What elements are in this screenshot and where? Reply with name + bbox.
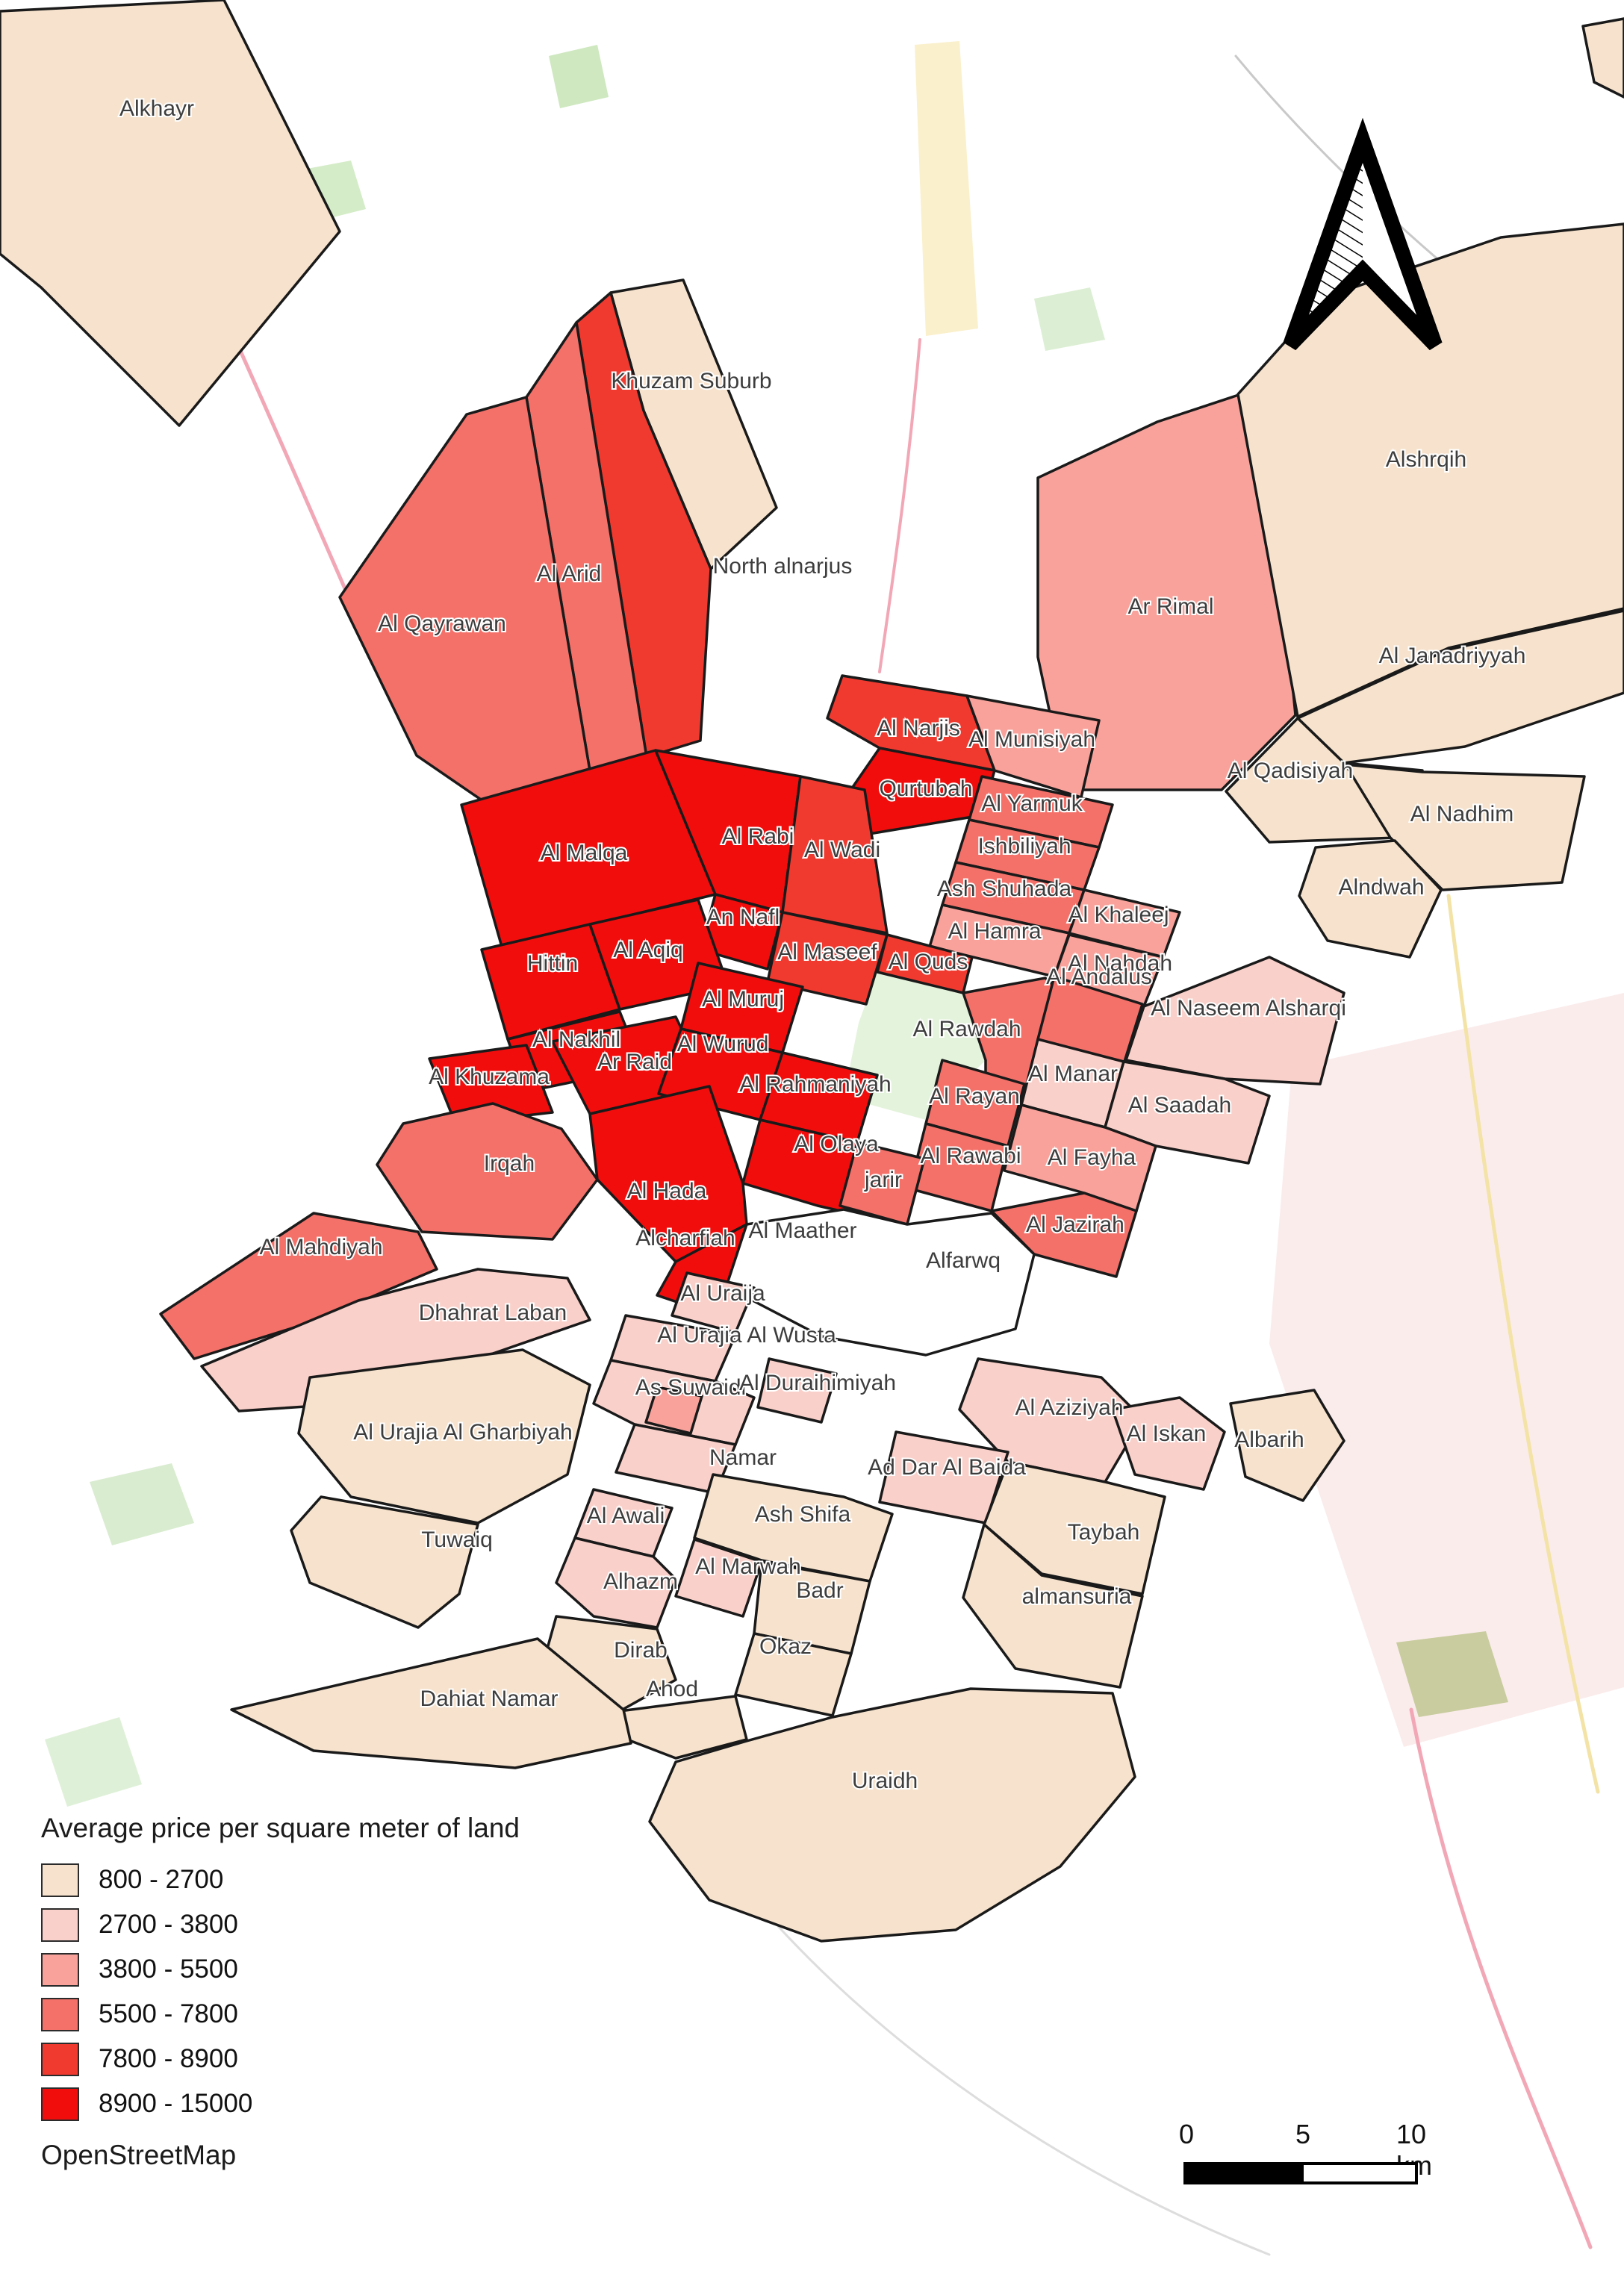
- legend-swatch-c6: [41, 2087, 79, 2121]
- district-label-al-maather: Al Maather: [748, 1218, 856, 1243]
- district-label-al-wurud: Al Wurud: [677, 1032, 769, 1056]
- district-corner-fragment: [1583, 19, 1624, 97]
- district-label-al-aqiq: Al Aqiq: [613, 938, 682, 962]
- legend-swatch-c4: [41, 1998, 79, 2031]
- district-label-dhahrat-laban: Dhahrat Laban: [419, 1301, 567, 1325]
- district-label-khuzam-suburb: Khuzam Suburb: [611, 369, 771, 393]
- district-label-al-mahdiyah: Al Mahdiyah: [259, 1235, 382, 1259]
- road-southeast: [1411, 1710, 1590, 2247]
- district-label-al-rahmaniyah: Al Rahmaniyah: [739, 1072, 891, 1097]
- district-label-alcharfiah: Alcharfiah: [635, 1226, 735, 1251]
- legend-label-c1: 800 - 2700: [99, 1865, 223, 1895]
- legend: Average price per square meter of land 8…: [41, 1813, 520, 2126]
- green-patch-west: [90, 1463, 194, 1545]
- district-label-al-hamra: Al Hamra: [948, 919, 1041, 944]
- scale-tick-five: 5: [1295, 2119, 1310, 2150]
- legend-label-c3: 3800 - 5500: [99, 1955, 238, 1984]
- district-label-qurtubah: Qurtubah: [879, 776, 972, 801]
- district-label-dirab: Dirab: [614, 1638, 668, 1663]
- scale-tick-zero: 0: [1179, 2119, 1194, 2150]
- legend-row-c3: 3800 - 5500: [41, 1947, 520, 1992]
- district-label-okaz: Okaz: [759, 1634, 812, 1659]
- north-arrow-icon: [1269, 112, 1449, 358]
- district-label-al-arid: Al Arid: [537, 561, 602, 586]
- district-label-irqah: Irqah: [484, 1151, 535, 1176]
- district-label-alhazm: Alhazm: [603, 1569, 678, 1594]
- legend-rows: 800 - 27002700 - 38003800 - 55005500 - 7…: [41, 1857, 520, 2126]
- district-label-ad-dar-al-baida: Ad Dar Al Baida: [868, 1455, 1026, 1480]
- district-label-al-manar: Al Manar: [1028, 1062, 1118, 1086]
- district-label-al-aziziyah: Al Aziziyah: [1015, 1395, 1123, 1420]
- road-north-airport: [880, 340, 920, 672]
- district-label-alndwah: Alndwah: [1338, 875, 1424, 900]
- district-label-al-rayan: Al Rayan: [929, 1084, 1020, 1109]
- district-label-al-nakhil: Al Nakhil: [532, 1027, 620, 1052]
- district-label-al-saadah: Al Saadah: [1128, 1093, 1231, 1118]
- district-label-al-urajia-al-wusta: Al Urajia Al Wusta: [657, 1323, 836, 1348]
- district-label-al-rawabi: Al Rawabi: [920, 1144, 1021, 1168]
- district-label-al-malqa: Al Malqa: [541, 841, 628, 865]
- district-label-al-jazirah: Al Jazirah: [1026, 1212, 1124, 1237]
- district-label-uraidh: Uraidh: [852, 1769, 918, 1793]
- scale-bar-graphic: [1183, 2162, 1419, 2184]
- legend-swatch-c2: [41, 1908, 79, 1942]
- district-label-al-olaya: Al Olaya: [794, 1132, 879, 1156]
- residential-tint-southeast: [1269, 993, 1624, 1747]
- district-label-al-qayrawan: Al Qayrawan: [378, 611, 506, 636]
- legend-row-c4: 5500 - 7800: [41, 1992, 520, 2037]
- legend-swatch-c1: [41, 1863, 79, 1897]
- district-label-hittin: Hittin: [527, 951, 578, 976]
- district-label-ishbiliyah: Ishbiliyah: [977, 834, 1071, 859]
- map-export-page: AlkhayrKhuzam SuburbNorth alnarjusAl Ari…: [0, 0, 1624, 2286]
- legend-row-c6: 8900 - 15000: [41, 2081, 520, 2126]
- legend-label-c5: 7800 - 8900: [99, 2044, 238, 2074]
- green-patch-north: [549, 45, 609, 108]
- district-label-alfarwq: Alfarwq: [926, 1248, 1001, 1273]
- scale-bar-ticks: 0 5 10 km: [1183, 2119, 1430, 2153]
- legend-row-c5: 7800 - 8900: [41, 2037, 520, 2081]
- district-label-al-naseem-alsharqi: Al Naseem Alsharqi: [1151, 996, 1346, 1021]
- green-patch-southwest: [45, 1717, 142, 1807]
- district-label-an-nafl: An Nafl: [706, 905, 780, 929]
- legend-label-c6: 8900 - 15000: [99, 2089, 252, 2119]
- district-label-al-andalus: Al Andalus: [1046, 965, 1152, 989]
- district-label-al-nadhim: Al Nadhim: [1410, 802, 1513, 826]
- district-label-al-uraija: Al Uraija: [680, 1281, 765, 1306]
- district-label-al-maseef: Al Maseef: [777, 940, 877, 965]
- district-label-al-hada: Al Hada: [627, 1179, 707, 1203]
- district-label-ar-rimal: Ar Rimal: [1127, 594, 1213, 619]
- legend-swatch-c3: [41, 1953, 79, 1987]
- legend-swatch-c5: [41, 2043, 79, 2076]
- district-label-ash-shifa: Ash Shifa: [755, 1502, 851, 1527]
- district-label-al-muruj: Al Muruj: [702, 987, 784, 1012]
- district-label-alkhayr: Alkhayr: [119, 96, 194, 121]
- district-label-al-duraihimiyah: Al Duraihimiyah: [739, 1371, 896, 1395]
- airport-strip: [915, 41, 978, 336]
- district-label-al-janadriyyah: Al Janadriyyah: [1379, 644, 1526, 668]
- district-label-al-narjis: Al Narjis: [877, 716, 960, 741]
- district-label-alshrqih: Alshrqih: [1386, 447, 1466, 472]
- district-label-al-marwah: Al Marwah: [695, 1554, 801, 1579]
- district-label-badr: Badr: [796, 1578, 843, 1603]
- district-label-al-quds: Al Quds: [889, 950, 968, 974]
- scale-bar-black-segment: [1183, 2162, 1301, 2184]
- district-label-as-suwaidi: As Suwaidi: [635, 1375, 746, 1400]
- district-label-al-yarmuk: Al Yarmuk: [981, 791, 1083, 816]
- district-label-taybah: Taybah: [1068, 1520, 1140, 1545]
- district-label-north-alnarjus: North alnarjus: [713, 554, 853, 579]
- district-label-al-iskan: Al Iskan: [1127, 1421, 1207, 1446]
- district-label-al-khuzama: Al Khuzama: [429, 1065, 550, 1089]
- district-label-dahiat-namar: Dahiat Namar: [420, 1687, 558, 1711]
- district-label-almansuria: almansuria: [1022, 1584, 1132, 1609]
- district-label-al-rawdah: Al Rawdah: [912, 1017, 1021, 1041]
- district-label-ash-shuhada: Ash Shuhada: [937, 876, 1071, 901]
- legend-row-c2: 2700 - 3800: [41, 1902, 520, 1947]
- district-label-al-wadi: Al Wadi: [804, 838, 880, 862]
- district-label-albarih: Albarih: [1234, 1427, 1304, 1452]
- district-alkhayr: [0, 0, 340, 426]
- scale-bar-white-segment: [1301, 2162, 1418, 2184]
- legend-title: Average price per square meter of land: [41, 1813, 520, 1844]
- district-label-al-fayha: Al Fayha: [1048, 1145, 1136, 1170]
- district-label-al-awali: Al Awali: [587, 1504, 665, 1528]
- district-label-ahod: Ahod: [646, 1677, 698, 1701]
- district-label-ar-raid: Ar Raid: [597, 1050, 672, 1074]
- legend-label-c4: 5500 - 7800: [99, 1999, 238, 2029]
- attribution-text: OpenStreetMap: [41, 2140, 236, 2171]
- district-label-al-qadisiyah: Al Qadisiyah: [1228, 759, 1353, 783]
- district-label-al-rabi: Al Rabi: [722, 824, 794, 849]
- green-patch-east: [1034, 287, 1105, 351]
- legend-row-c1: 800 - 2700: [41, 1857, 520, 1902]
- district-al-naseem-alsharqi: [1126, 957, 1344, 1084]
- district-label-al-urajia-al-gharbiyah: Al Urajia Al Gharbiyah: [353, 1420, 572, 1445]
- legend-label-c2: 2700 - 3800: [99, 1910, 238, 1940]
- district-label-al-khaleej: Al Khaleej: [1068, 903, 1169, 927]
- district-label-al-munisiyah: Al Munisiyah: [968, 727, 1095, 752]
- district-label-namar: Namar: [709, 1445, 777, 1470]
- district-label-tuwaiq: Tuwaiq: [421, 1527, 493, 1552]
- scale-bar: 0 5 10 km: [1183, 2119, 1430, 2184]
- district-label-jarir: jarir: [864, 1168, 902, 1192]
